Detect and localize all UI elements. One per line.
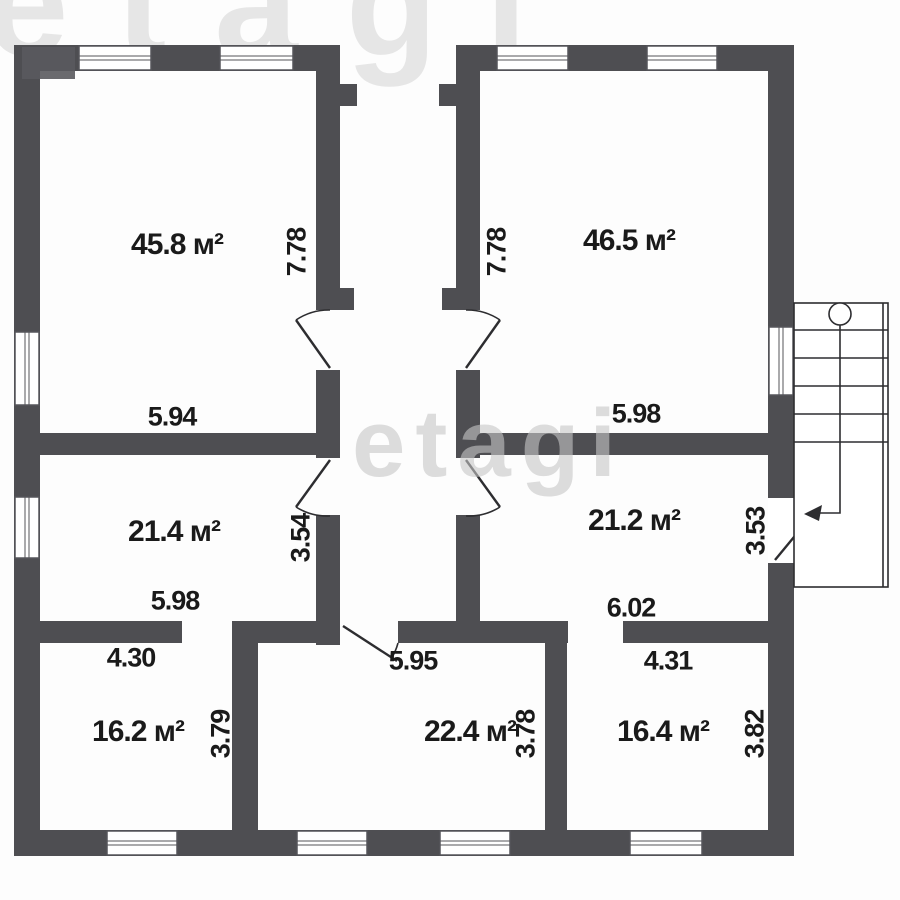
floor-plan-svg	[0, 0, 900, 900]
window	[440, 831, 510, 855]
door-top-left-room	[296, 310, 330, 368]
window	[647, 46, 717, 70]
dim-width-middle-right: 6.02	[607, 595, 656, 622]
dim-height-top-right: 7.78	[484, 228, 511, 277]
dim-height-top-left: 7.78	[284, 228, 311, 277]
divider-bottom-right	[545, 621, 567, 856]
floor-plan-canvas: etagi	[0, 0, 900, 900]
doors	[296, 310, 815, 661]
lower-wall-left-a	[14, 621, 182, 643]
hall-right-wall-upper	[456, 71, 480, 310]
watermark-logo-square	[22, 47, 75, 79]
dim-width-top-left: 5.94	[148, 404, 197, 431]
dim-height-bottom-right: 3.82	[742, 710, 769, 759]
staircase-start-circle	[829, 303, 851, 325]
room-area-label-middle-right: 21.2 м²	[588, 506, 680, 536]
dim-width-top-right: 5.98	[612, 401, 661, 428]
window	[630, 831, 702, 855]
door-middle-left-room	[296, 460, 330, 516]
dim-height-middle-left: 3.54	[288, 514, 315, 563]
dim-width-middle-left: 5.98	[151, 588, 200, 615]
dim-height-middle-right: 3.53	[743, 507, 770, 556]
window	[497, 46, 568, 70]
middle-right-room-bottom-wall	[623, 621, 768, 643]
window	[769, 327, 793, 395]
staircase	[794, 303, 888, 587]
room-area-label-bottom-right: 16.4 м²	[617, 717, 709, 747]
room-area-label-top-left: 45.8 м²	[131, 230, 223, 260]
window	[15, 497, 39, 558]
divider-bottom-left	[232, 621, 258, 856]
staircase-outline	[794, 303, 888, 587]
bottom-middle-room-top-wall	[398, 621, 568, 643]
dim-width-bottom-left: 4.30	[107, 645, 156, 672]
room-area-label-middle-left: 21.4 м²	[128, 517, 220, 547]
window	[297, 831, 367, 855]
upper-door-jamb-right	[442, 288, 456, 310]
room-area-label-top-right: 46.5 м²	[583, 226, 675, 256]
hall-left-wall-upper	[316, 71, 340, 310]
vestibule-jamb-left	[340, 84, 357, 106]
room-area-label-bottom-left: 16.2 м²	[92, 717, 184, 747]
window	[107, 831, 177, 855]
dim-height-bottom-middle: 3.78	[513, 710, 540, 759]
upper-door-jamb-left	[340, 288, 354, 310]
dim-width-bottom-right: 4.31	[644, 648, 693, 675]
dim-height-bottom-left: 3.79	[208, 710, 235, 759]
door-middle-right-room	[466, 460, 500, 516]
door-top-right-room	[466, 310, 500, 368]
dim-width-bottom-middle: 5.95	[389, 648, 438, 675]
vestibule-jamb-right	[439, 84, 456, 106]
mid-wall-left	[14, 433, 340, 455]
room-area-label-bottom-middle: 22.4 м²	[424, 717, 516, 747]
hall-right-wall-lower	[456, 515, 480, 623]
window	[79, 46, 151, 70]
window	[220, 46, 293, 70]
mid-wall-right	[456, 433, 794, 455]
window	[15, 332, 39, 405]
